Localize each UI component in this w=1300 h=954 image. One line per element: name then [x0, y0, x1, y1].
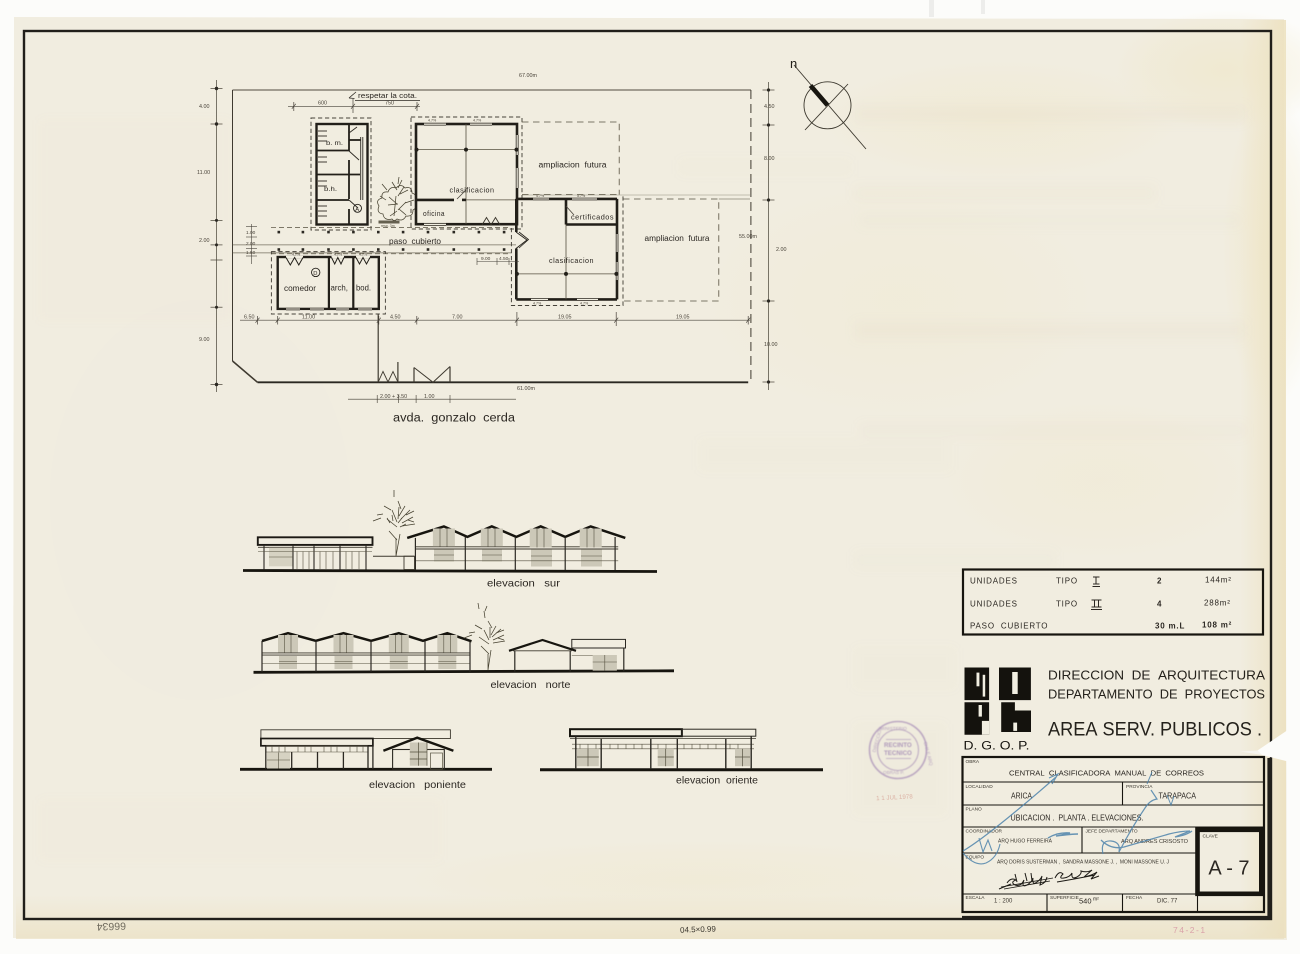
svg-text:A - 7: A - 7 — [1208, 858, 1249, 880]
svg-text:1 : 200: 1 : 200 — [994, 899, 1013, 905]
svg-text:4.50: 4.50 — [390, 315, 401, 321]
svg-text:144m²: 144m² — [1205, 576, 1232, 585]
svg-text:4.50: 4.50 — [499, 256, 509, 262]
svg-text:4.7%: 4.7% — [580, 302, 589, 306]
svg-text:elevacion norte: elevacion norte — [491, 679, 571, 691]
svg-text:108 m²: 108 m² — [1202, 621, 1232, 630]
svg-text:19.05: 19.05 — [676, 315, 690, 321]
svg-text:1.50: 1.50 — [246, 250, 256, 256]
svg-text:certificados: certificados — [571, 213, 614, 222]
svg-text:CENTRAL CLASIFICADORA MANUAL: CENTRAL CLASIFICADORA MANUAL DE CORREOS — [1009, 769, 1204, 778]
svg-text:6.50: 6.50 — [244, 315, 255, 321]
svg-text:4.50: 4.50 — [764, 104, 775, 110]
svg-text:FECHA: FECHA — [1126, 895, 1143, 901]
svg-text:11.00: 11.00 — [302, 315, 315, 321]
svg-text:1.00: 1.00 — [424, 394, 435, 400]
svg-text:arch,: arch, — [331, 283, 349, 293]
svg-text:ARQ DORIS SUSTERMAN , SANDRA: ARQ DORIS SUSTERMAN , SANDRA MASSONE J. … — [997, 860, 1169, 866]
svg-text:2.00 + 3.50: 2.00 + 3.50 — [380, 394, 407, 400]
svg-text:clasificacion: clasificacion — [450, 186, 495, 195]
svg-text:4: 4 — [1157, 600, 1162, 609]
svg-text:comedor: comedor — [284, 283, 316, 293]
svg-text:elevacion sur: elevacion sur — [487, 578, 561, 590]
svg-text:4.00: 4.00 — [199, 104, 210, 110]
svg-text:UNIDADES: UNIDADES — [970, 577, 1018, 586]
svg-text:SUPERFICIE: SUPERFICIE — [1050, 895, 1079, 901]
svg-text:CLAVE: CLAVE — [1203, 834, 1218, 840]
svg-text:11.00: 11.00 — [197, 170, 210, 176]
svg-text:respetar la cota.: respetar la cota. — [358, 93, 417, 100]
svg-text:TECNICO: TECNICO — [884, 750, 912, 757]
svg-text:ARQ ANDRES CRISOSTO: ARQ ANDRES CRISOSTO — [1121, 839, 1188, 845]
svg-text:A: A — [355, 207, 359, 213]
svg-text:2.00: 2.00 — [776, 247, 787, 253]
svg-text:clasificacion: clasificacion — [549, 256, 594, 265]
svg-text:7.00: 7.00 — [452, 315, 463, 321]
svg-text:UNIDADES: UNIDADES — [970, 600, 1018, 609]
svg-text:288m²: 288m² — [1204, 599, 1231, 608]
svg-text:elevacion oriente: elevacion oriente — [676, 775, 758, 787]
svg-text:ESCALA: ESCALA — [966, 895, 986, 901]
svg-text:750: 750 — [385, 101, 394, 107]
svg-text:04.5×0.99: 04.5×0.99 — [680, 924, 717, 934]
svg-text:DIRECCION DE ARQUITECTURA: DIRECCION DE ARQUITECTURA — [1048, 668, 1265, 683]
svg-text:9.00: 9.00 — [481, 256, 491, 262]
svg-text:540: 540 — [1079, 897, 1092, 906]
svg-text:66634: 66634 — [96, 919, 126, 932]
svg-text:LOCALIDAD: LOCALIDAD — [966, 784, 994, 790]
svg-text:67.00m: 67.00m — [519, 73, 537, 79]
svg-text:10.00: 10.00 — [764, 342, 778, 348]
svg-text:b. m.: b. m. — [326, 140, 343, 147]
svg-text:4.7%: 4.7% — [533, 302, 542, 306]
svg-text:b.h.: b.h. — [324, 186, 337, 193]
svg-text:bod.: bod. — [356, 283, 371, 293]
svg-text:DEPARTAMENTO DE PROYECTOS: DEPARTAMENTO DE PROYECTOS — [1048, 687, 1265, 702]
svg-text:n: n — [790, 56, 797, 71]
svg-text:MINISTERIO: MINISTERIO — [880, 726, 907, 731]
svg-text:8.00: 8.00 — [764, 156, 775, 162]
svg-text:elevacion poniente: elevacion poniente — [369, 779, 466, 791]
svg-text:4.7%: 4.7% — [473, 119, 482, 123]
svg-text:TIPO: TIPO — [1056, 577, 1078, 586]
svg-text:74-2-1: 74-2-1 — [1173, 925, 1207, 935]
svg-text:ampliacion futura: ampliacion futura — [539, 161, 608, 170]
svg-text:EQUIPO: EQUIPO — [966, 855, 985, 861]
svg-text:D: D — [313, 271, 317, 277]
svg-text:AREA SERV. PUBLICOS .: AREA SERV. PUBLICOS . — [1048, 720, 1262, 741]
svg-text:2.00: 2.00 — [246, 241, 256, 247]
svg-text:m²: m² — [1093, 897, 1099, 903]
svg-text:9.00: 9.00 — [199, 337, 210, 343]
svg-text:RECINTO: RECINTO — [884, 742, 912, 749]
svg-text:avda. gonzalo cerda: avda. gonzalo cerda — [393, 413, 516, 425]
svg-text:PLANO: PLANO — [966, 807, 983, 813]
svg-text:55.00m: 55.00m — [739, 234, 757, 240]
svg-text:2: 2 — [1157, 577, 1162, 586]
svg-text:D. G. O. P.: D. G. O. P. — [964, 741, 1030, 753]
svg-text:PROVINCIA: PROVINCIA — [1126, 784, 1153, 790]
svg-text:paso cubierto: paso cubierto — [389, 236, 441, 246]
svg-text:UBICACION . PLANTA . ELEVACIO: UBICACION . PLANTA . ELEVACIONES. — [1011, 814, 1144, 823]
svg-text:4.7%: 4.7% — [428, 119, 437, 123]
svg-text:TARAPACA: TARAPACA — [1159, 792, 1197, 801]
svg-text:ampliacion futura: ampliacion futura — [645, 234, 711, 243]
svg-text:600: 600 — [318, 101, 327, 107]
svg-text:TIPO: TIPO — [1056, 600, 1078, 609]
svg-text:2.00: 2.00 — [199, 238, 210, 244]
svg-text:19.05: 19.05 — [558, 315, 572, 321]
svg-text:OBRA: OBRA — [966, 759, 980, 765]
svg-text:oficina: oficina — [423, 209, 445, 218]
svg-text:1.00: 1.00 — [246, 230, 256, 236]
svg-text:COORDINADOR: COORDINADOR — [966, 829, 1003, 835]
svg-text:61.00m: 61.00m — [517, 386, 535, 392]
svg-text:ARQ HUGO FERREIRA: ARQ HUGO FERREIRA — [998, 839, 1053, 845]
svg-text:30 m.L: 30 m.L — [1155, 622, 1185, 631]
svg-text:OBRAS P.: OBRAS P. — [883, 770, 904, 775]
svg-text:DIC. 77: DIC. 77 — [1157, 899, 1178, 905]
svg-text:ARICA: ARICA — [1011, 792, 1032, 801]
svg-text:PASO CUBIERTO: PASO CUBIERTO — [970, 622, 1048, 631]
